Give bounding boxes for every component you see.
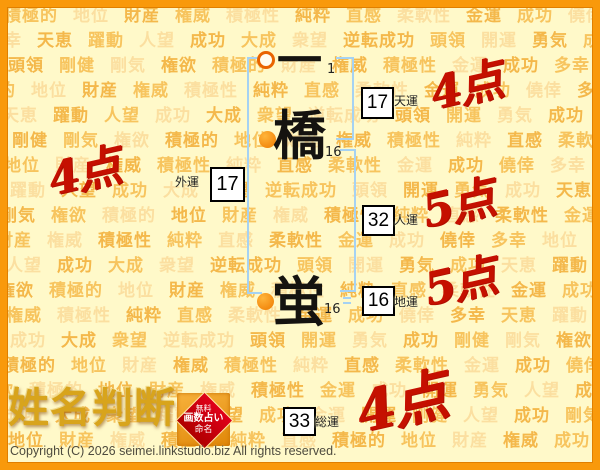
- soun-value-box: 33: [283, 407, 316, 436]
- jinun-bracket: [340, 149, 356, 292]
- name-char-1: 一: [277, 38, 322, 83]
- name-char-1-strokes: 1: [327, 63, 335, 76]
- gaiun-label: 外運: [175, 176, 199, 188]
- first-char-bullet-icon: [257, 51, 275, 69]
- soun-label: 総運: [315, 416, 339, 428]
- copyright-text: Copyright (C) 2026 seimei.linkstudio.biz…: [10, 444, 337, 458]
- tenun-value-box: 17: [361, 87, 394, 119]
- tenun-bracket: [336, 57, 354, 140]
- name-char-2-strokes: 16: [325, 146, 342, 159]
- equals-tick: [343, 302, 351, 304]
- equals-tick: [343, 297, 351, 299]
- site-logo[interactable]: 姓名判断: [8, 388, 176, 429]
- stamp-line-3: 命名: [194, 425, 212, 435]
- chiun-label: 地運: [394, 296, 418, 308]
- jinun-value-box: 32: [362, 205, 395, 236]
- chiun-value-box: 16: [362, 286, 395, 316]
- tenun-label: 天運: [394, 95, 418, 107]
- seimei-handan-result-page: 積極的地位財産権威積極性純粋直感柔軟性金運成功僥倖多幸幸天恵躍動人望成功大成衆望…: [0, 0, 600, 470]
- gaiun-value-box: 17: [210, 167, 245, 202]
- name-char-3-strokes: 16: [324, 303, 341, 316]
- name-char-3: 蛍: [272, 276, 325, 329]
- gaiun-bracket: [247, 57, 262, 294]
- jinun-label: 人運: [394, 214, 418, 226]
- stamp-line-2: 画数占い: [184, 413, 224, 425]
- name-char-2: 橋: [273, 110, 326, 163]
- stamp-line-1: 無料: [196, 404, 212, 413]
- free-naming-stamp[interactable]: 無料 画数占い 命名: [177, 393, 230, 446]
